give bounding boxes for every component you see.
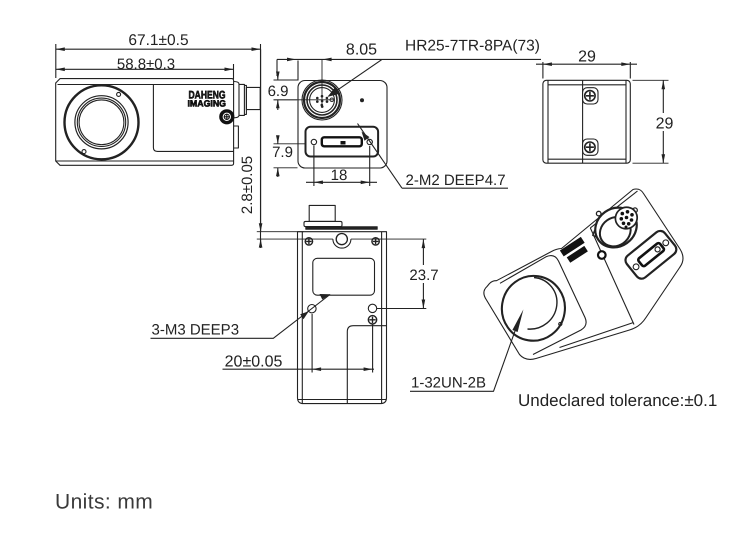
svg-text:HR25-7TR-8PA(73): HR25-7TR-8PA(73) [405,38,540,55]
svg-text:2.8±0.05: 2.8±0.05 [239,156,256,214]
svg-text:18: 18 [331,167,348,184]
svg-text:29: 29 [656,115,674,132]
svg-text:29: 29 [578,48,596,65]
svg-text:3-M3 DEEP3: 3-M3 DEEP3 [152,322,240,339]
svg-text:67.1±0.5: 67.1±0.5 [128,32,188,49]
svg-text:1-32UN-2B: 1-32UN-2B [411,375,486,392]
svg-text:Units: mm: Units: mm [55,491,153,514]
svg-text:58.8±0.3: 58.8±0.3 [117,56,175,73]
svg-text:23.7: 23.7 [409,267,438,284]
svg-text:20±0.05: 20±0.05 [225,354,283,371]
svg-text:2-M2 DEEP4.7: 2-M2 DEEP4.7 [406,172,506,189]
svg-text:6.9: 6.9 [268,83,289,100]
svg-text:8.05: 8.05 [346,42,377,59]
svg-text:7.9: 7.9 [272,144,293,161]
svg-text:Undeclared tolerance:±0.1: Undeclared tolerance:±0.1 [518,391,717,410]
svg-text:IMAGING: IMAGING [188,99,227,109]
